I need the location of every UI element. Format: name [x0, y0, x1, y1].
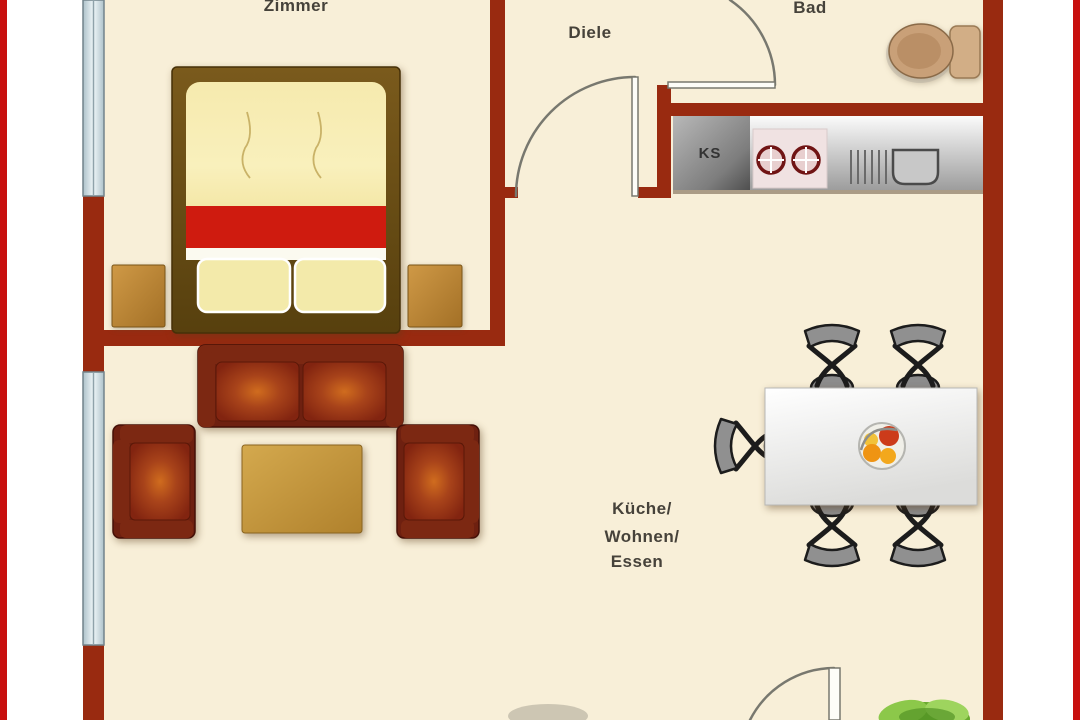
bed-stripe [186, 206, 386, 248]
hall-door-leaf [632, 77, 638, 196]
stove-burner-right [793, 147, 819, 173]
toilet-bowl-inner [897, 33, 941, 69]
wall-bath-kitchen [671, 103, 985, 116]
sofa-back [198, 345, 403, 364]
sofa-cushion-left [216, 362, 299, 421]
label-living-line-2: Wohnen/ [605, 527, 680, 546]
floor-plan-svg: KS [0, 0, 1080, 720]
sofa-cushion-right [303, 362, 386, 421]
frame-left [0, 0, 7, 720]
armchair-left-back [113, 440, 130, 523]
wall-bedroom-hall [490, 0, 505, 346]
label-bedroom: Zimmer [264, 0, 328, 15]
fruit-orange-2 [880, 448, 896, 464]
kitchen-counter: KS [673, 116, 983, 194]
fruit-orange-1 [863, 444, 881, 462]
label-bathroom: Bad [793, 0, 827, 17]
sofa [198, 345, 403, 427]
sofa-arm-left [198, 352, 215, 427]
label-hallway: Diele [568, 23, 611, 42]
label-living-line-3: Essen [611, 552, 664, 571]
sink-basin [893, 150, 938, 184]
pillow-right [295, 259, 385, 312]
armchair-left-cushion [130, 443, 190, 520]
coffee-table [242, 445, 362, 533]
armchair-left [113, 425, 195, 538]
armchair-right-arm-top [401, 425, 474, 443]
fruit-bowl [859, 423, 905, 469]
bed [172, 67, 400, 333]
toilet [886, 24, 980, 83]
nightstand-left [112, 265, 165, 327]
wall-left-bottom [83, 645, 104, 720]
armchair-right-arm-bottom [401, 520, 474, 538]
armchair-right-cushion [404, 443, 464, 520]
armchair-right-back [462, 440, 479, 523]
armchair-right [397, 425, 479, 538]
sink [851, 150, 938, 184]
bath-door-leaf [668, 82, 775, 88]
frame-right [1073, 0, 1080, 720]
stove-burner-left [758, 147, 784, 173]
label-living-line-1: Küche/ [612, 499, 672, 518]
balcony-door-leaf [829, 668, 840, 720]
armchair-left-arm-bottom [120, 520, 193, 538]
fridge-label: KS [699, 145, 722, 162]
pillow-left [198, 259, 290, 312]
wall-right [983, 0, 1003, 720]
nightstand-right [408, 265, 462, 327]
armchair-left-arm-top [120, 425, 193, 443]
toilet-tank [950, 26, 980, 78]
wall-hall-bath [657, 85, 671, 198]
floor-plan: KS [0, 0, 1080, 720]
sofa-arm-right [386, 352, 403, 427]
